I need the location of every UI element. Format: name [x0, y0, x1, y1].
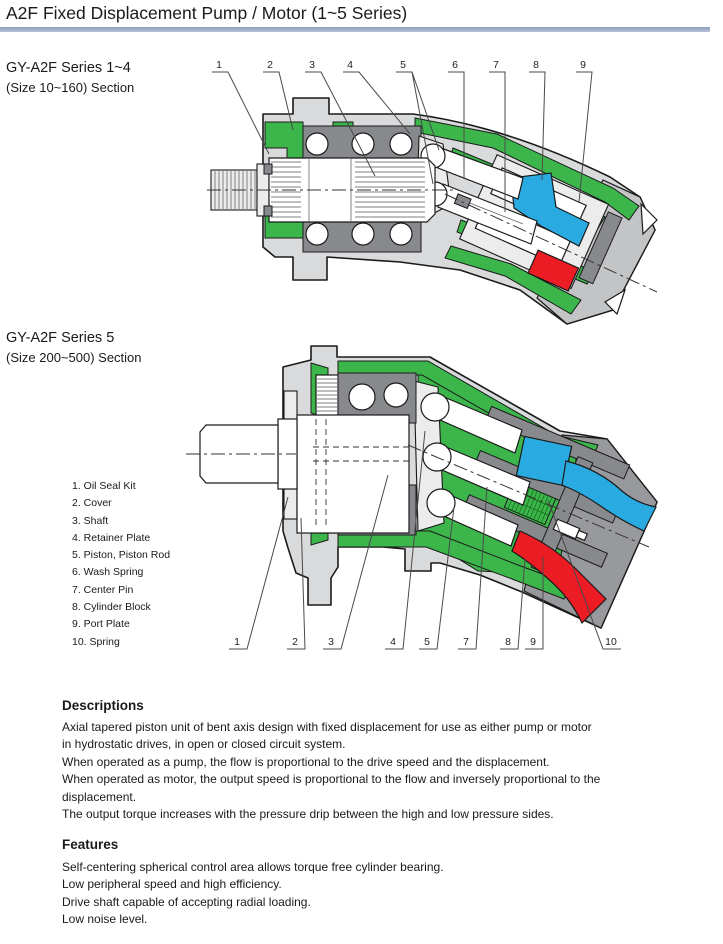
bearing-ball — [390, 133, 412, 155]
callout-leader — [229, 497, 288, 649]
datasheet-page: A2F Fixed Displacement Pump / Motor (1~5… — [0, 0, 723, 944]
callout-number: 7 — [463, 636, 469, 648]
oil-seal — [264, 164, 272, 174]
feature-line: Low peripheral speed and high efficiency… — [62, 876, 444, 893]
bearing-ball — [352, 133, 374, 155]
descriptions-heading: Descriptions — [62, 698, 144, 713]
description-line: in hydrostatic drives, in open or closed… — [62, 736, 600, 753]
bearing-ball — [390, 223, 412, 245]
callout-number: 4 — [390, 636, 396, 648]
title-divider — [0, 27, 710, 32]
descriptions-text: Axial tapered piston unit of bent axis d… — [62, 719, 600, 823]
bearing-ball — [384, 383, 408, 407]
series-5-size: (Size 200~500) Section — [6, 350, 142, 365]
bearing-ball — [349, 384, 375, 410]
parts-list-item: 7. Center Pin — [72, 582, 170, 599]
diagram-series-5: 1 2 3 4 5 7 8 9 10 — [178, 335, 668, 665]
oil-seal — [264, 206, 272, 216]
series-1-4-label: GY-A2F Series 1~4 (Size 10~160) Section — [6, 60, 134, 95]
callout-number: 9 — [530, 636, 536, 648]
parts-list-item: 4. Retainer Plate — [72, 530, 170, 547]
shaft-body-block — [297, 415, 409, 533]
parts-list: 1. Oil Seal Kit 2. Cover 3. Shaft 4. Ret… — [72, 478, 170, 651]
callout-number: 8 — [533, 59, 539, 71]
callout-number: 5 — [400, 59, 406, 71]
parts-list-item: 1. Oil Seal Kit — [72, 478, 170, 495]
parts-list-item: 9. Port Plate — [72, 616, 170, 633]
series-1-4-title: GY-A2F Series 1~4 — [6, 60, 134, 76]
features-text: Self-centering spherical control area al… — [62, 859, 444, 929]
series-5-label: GY-A2F Series 5 (Size 200~500) Section — [6, 330, 142, 365]
series-1-4-size: (Size 10~160) Section — [6, 80, 134, 95]
description-line: displacement. — [62, 789, 600, 806]
series-5-title: GY-A2F Series 5 — [6, 330, 142, 346]
diagram-series-1-4: 1 2 3 4 5 6 7 8 9 — [205, 52, 665, 342]
features-heading: Features — [62, 837, 118, 852]
parts-list-item: 6. Wash Spring — [72, 564, 170, 581]
callout-leader — [212, 72, 269, 154]
callout-number: 2 — [292, 636, 298, 648]
callout-number: 1 — [234, 636, 240, 648]
callout-number: 7 — [493, 59, 499, 71]
roller-bearing — [316, 375, 338, 421]
description-line: Axial tapered piston unit of bent axis d… — [62, 719, 600, 736]
callout-number: 8 — [505, 636, 511, 648]
callout-number: 9 — [580, 59, 586, 71]
parts-list-item: 8. Cylinder Block — [72, 599, 170, 616]
parts-list-item: 5. Piston, Piston Rod — [72, 547, 170, 564]
callout-number: 3 — [328, 636, 334, 648]
callout-number: 6 — [452, 59, 458, 71]
page-title: A2F Fixed Displacement Pump / Motor (1~5… — [6, 3, 407, 24]
callout-number: 5 — [424, 636, 430, 648]
description-line: When operated as a pump, the flow is pro… — [62, 754, 600, 771]
piston-ball-head — [421, 393, 449, 421]
callout-number: 2 — [267, 59, 273, 71]
callout-number: 4 — [347, 59, 353, 71]
bearing-ball — [306, 133, 328, 155]
description-line: When operated as motor, the output speed… — [62, 771, 600, 788]
description-line: The output torque increases with the pre… — [62, 806, 600, 823]
parts-list-item: 3. Shaft — [72, 513, 170, 530]
callout-number: 1 — [216, 59, 222, 71]
callout-number: 3 — [309, 59, 315, 71]
callout-number: 10 — [605, 636, 617, 648]
feature-line: Self-centering spherical control area al… — [62, 859, 444, 876]
parts-list-item: 2. Cover — [72, 495, 170, 512]
bearing-ball — [352, 223, 374, 245]
feature-line: Low noise level. — [62, 911, 444, 928]
bearing-ball — [306, 223, 328, 245]
feature-line: Drive shaft capable of accepting radial … — [62, 894, 444, 911]
piston-ball-head — [427, 489, 455, 517]
parts-list-item: 10. Spring — [72, 634, 170, 651]
